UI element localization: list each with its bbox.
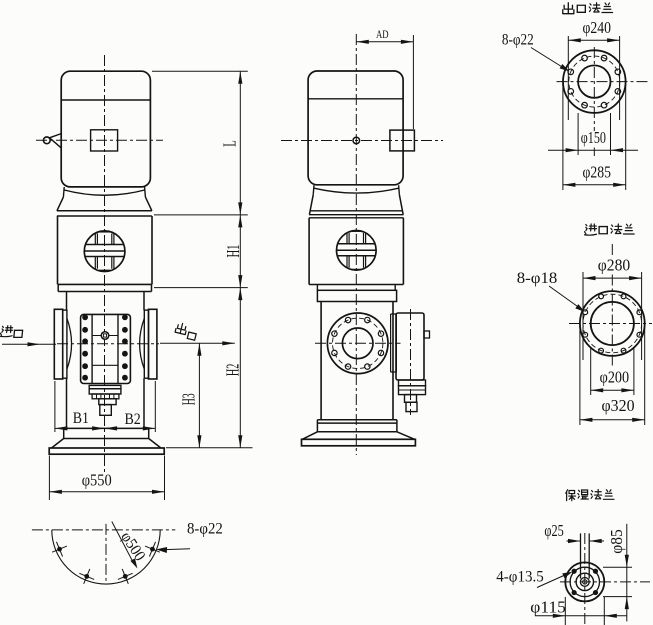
- svg-text:φ85: φ85: [607, 529, 626, 554]
- svg-text:8-φ18: 8-φ18: [517, 270, 558, 287]
- svg-text:B2: B2: [124, 411, 140, 428]
- svg-text:φ240: φ240: [582, 18, 611, 37]
- svg-text:φ25: φ25: [544, 521, 563, 540]
- svg-text:8-φ22: 8-φ22: [502, 32, 534, 49]
- svg-text:AD: AD: [376, 27, 389, 41]
- svg-text:H3: H3: [179, 393, 199, 405]
- svg-text:φ150: φ150: [581, 128, 606, 147]
- svg-text:φ320: φ320: [601, 396, 634, 415]
- svg-text:φ550: φ550: [82, 471, 112, 490]
- svg-text:8-φ22: 8-φ22: [187, 521, 223, 538]
- svg-text:φ280: φ280: [598, 255, 630, 274]
- svg-text:φ285: φ285: [582, 163, 611, 182]
- svg-text:B1: B1: [73, 410, 89, 427]
- svg-text:φ115: φ115: [530, 597, 566, 616]
- svg-text:H1: H1: [223, 245, 243, 258]
- svg-text:4-φ13.5: 4-φ13.5: [496, 568, 543, 585]
- svg-text:L: L: [220, 140, 240, 147]
- svg-text:H2: H2: [223, 364, 243, 377]
- svg-text:φ200: φ200: [600, 368, 630, 387]
